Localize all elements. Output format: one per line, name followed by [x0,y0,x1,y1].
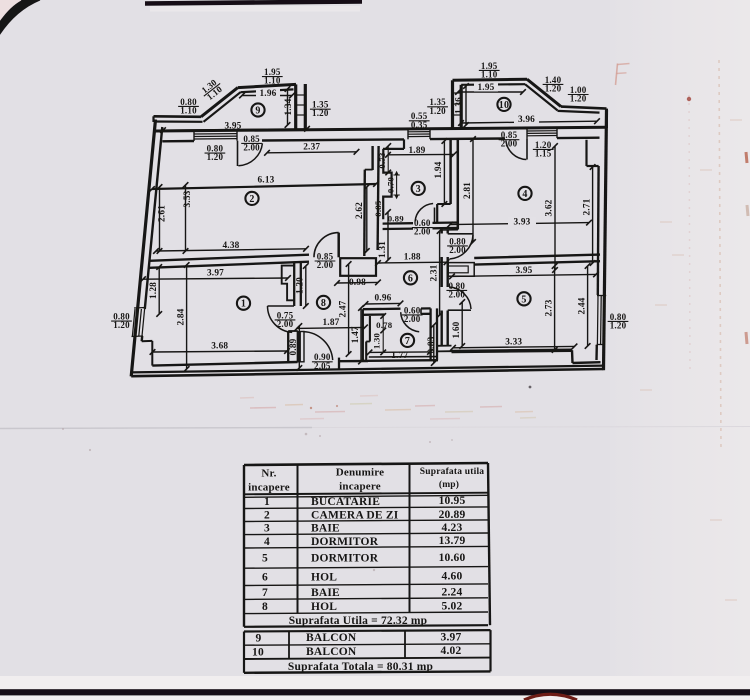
svg-text:2: 2 [264,510,270,522]
svg-text:2.37: 2.37 [303,143,320,153]
svg-text:2.00: 2.00 [449,245,466,255]
svg-text:BUCATARIE: BUCATARIE [311,496,380,508]
svg-text:4: 4 [522,189,527,200]
svg-text:1.20: 1.20 [610,320,627,330]
svg-text:0.89: 0.89 [388,213,405,223]
svg-text:1.15: 1.15 [535,148,552,158]
svg-text:4: 4 [264,536,270,548]
svg-text:1.89: 1.89 [408,146,425,156]
svg-text:1.87: 1.87 [322,318,339,328]
svg-text:0.70: 0.70 [386,177,396,194]
svg-text:1.88: 1.88 [404,252,421,262]
svg-text:5: 5 [262,553,268,565]
svg-text:1.10: 1.10 [264,76,281,86]
svg-text:4.38: 4.38 [222,241,239,251]
svg-text:BAIE: BAIE [311,587,340,599]
svg-text:1.20: 1.20 [570,94,587,104]
svg-text:0.85: 0.85 [373,200,383,217]
svg-text:Suprafata Utila = 72.32 mp: Suprafata Utila = 72.32 mp [289,615,428,627]
svg-text:0.73: 0.73 [377,152,387,169]
svg-text:10: 10 [499,100,509,111]
svg-text:HOL: HOL [311,571,337,583]
svg-text:7: 7 [262,587,268,599]
svg-text:1.30: 1.30 [372,333,382,350]
svg-text:6.13: 6.13 [257,176,274,186]
svg-text:incapere: incapere [339,481,381,493]
svg-text:1.34: 1.34 [284,98,294,115]
svg-text:2.00: 2.00 [317,260,334,270]
svg-text:10: 10 [252,646,264,658]
svg-text:2.00: 2.00 [501,139,518,149]
svg-text:2.00: 2.00 [414,227,431,237]
svg-text:2.81: 2.81 [463,182,473,199]
svg-text:2.84: 2.84 [176,308,186,325]
svg-text:2.31: 2.31 [430,264,440,281]
svg-text:1.47: 1.47 [351,326,361,343]
svg-text:7: 7 [405,336,410,347]
svg-text:2.71: 2.71 [582,198,592,215]
svg-text:5: 5 [521,294,526,305]
svg-text:3.95: 3.95 [515,266,532,276]
svg-text:3.53: 3.53 [183,190,193,207]
svg-text:3.96: 3.96 [518,115,535,125]
svg-text:4.02: 4.02 [441,645,462,657]
svg-text:9: 9 [256,633,262,645]
svg-text:1: 1 [241,299,246,310]
svg-text:2.24: 2.24 [442,586,463,598]
svg-text:1.10: 1.10 [180,105,197,115]
svg-text:2.00: 2.00 [404,314,421,324]
svg-text:2.00: 2.00 [277,319,294,329]
svg-text:1.20: 1.20 [312,108,329,118]
svg-text:1.20: 1.20 [207,152,224,162]
svg-text:3: 3 [416,184,421,195]
svg-text:1.20: 1.20 [545,83,562,93]
svg-text:2.05: 2.05 [314,361,331,371]
svg-text:1.10: 1.10 [481,69,498,79]
svg-text:6: 6 [262,571,268,583]
svg-text:3.68: 3.68 [211,341,228,351]
svg-text:1.96: 1.96 [259,89,276,99]
svg-text:3.93: 3.93 [513,217,530,227]
svg-text:0.89: 0.89 [289,338,299,355]
svg-text:CAMERA DE ZI: CAMERA DE ZI [311,510,399,522]
svg-text:Suprafata utila: Suprafata utila [420,467,485,477]
svg-text:2.47: 2.47 [338,300,348,317]
svg-text:0.98: 0.98 [349,278,366,288]
svg-text:3.97: 3.97 [207,269,224,279]
svg-text:3.95: 3.95 [224,122,241,132]
svg-text:(mp): (mp) [439,479,459,490]
svg-text:5.02: 5.02 [442,600,463,612]
svg-text:1.60: 1.60 [452,321,462,338]
svg-text:1.36: 1.36 [455,97,465,114]
svg-text:incapere: incapere [248,482,290,494]
svg-text:8: 8 [321,298,326,309]
svg-text:3.33: 3.33 [505,337,522,347]
svg-text:2.00: 2.00 [449,289,466,299]
svg-text:1.94: 1.94 [434,161,444,178]
svg-text:HOL: HOL [311,601,337,613]
svg-text:4.60: 4.60 [442,571,463,583]
svg-text:Denumire: Denumire [336,467,384,479]
svg-text:2.73: 2.73 [544,299,554,316]
svg-text:0.96: 0.96 [374,294,391,304]
svg-text:2: 2 [249,194,254,205]
svg-text:1.20: 1.20 [429,106,446,116]
svg-text:6: 6 [408,273,413,284]
svg-text:Suprafata Totala = 80.31 mp: Suprafata Totala = 80.31 mp [288,661,433,673]
svg-text:BALCON: BALCON [306,646,357,658]
svg-text:0.35: 0.35 [411,120,428,130]
svg-text:DORMITOR: DORMITOR [311,553,379,565]
svg-text:13.79: 13.79 [439,535,466,547]
svg-text:20.89: 20.89 [439,509,466,521]
svg-text:BAIE: BAIE [311,523,340,535]
svg-text:3.62: 3.62 [545,199,555,216]
svg-text:Nr.: Nr. [261,468,276,480]
svg-text:3: 3 [264,523,270,535]
svg-text:10.95: 10.95 [439,495,466,507]
svg-text:2.00: 2.00 [243,142,260,152]
svg-text:1.31: 1.31 [378,241,388,258]
svg-text:1.20: 1.20 [296,277,306,294]
svg-text:8: 8 [262,601,268,613]
svg-text:9: 9 [255,106,260,117]
svg-text:1.77: 1.77 [391,351,408,361]
svg-text:0.83: 0.83 [427,336,437,353]
svg-text:DORMITOR: DORMITOR [311,536,379,548]
svg-text:BALCON: BALCON [306,632,357,644]
svg-text:4.23: 4.23 [442,522,463,534]
svg-text:2.61: 2.61 [158,205,168,222]
svg-text:1.95: 1.95 [477,83,494,93]
svg-text:2.62: 2.62 [355,202,365,219]
svg-text:1.20: 1.20 [113,320,130,330]
svg-text:1: 1 [264,496,270,508]
svg-text:1.28: 1.28 [149,282,159,299]
svg-text:10.60: 10.60 [439,552,466,564]
svg-text:2.44: 2.44 [578,297,588,314]
svg-text:3.97: 3.97 [441,631,462,643]
